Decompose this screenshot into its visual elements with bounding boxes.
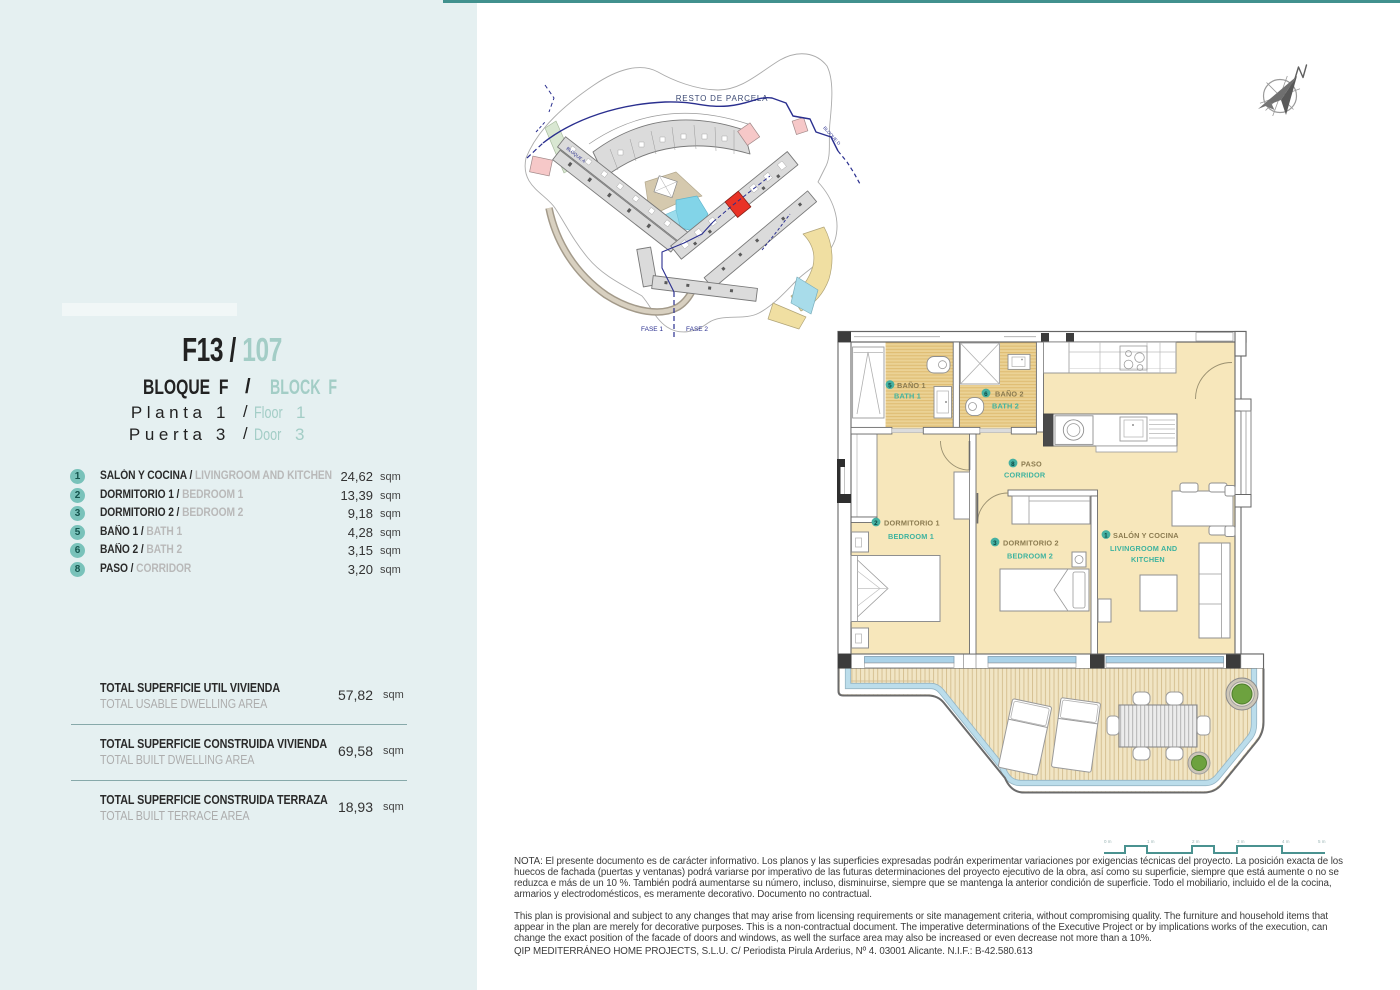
svg-text:BAÑO 2: BAÑO 2 [995, 390, 1024, 399]
svg-text:LIVINGROOM AND: LIVINGROOM AND [1110, 544, 1177, 553]
svg-text:DORMITORIO 1: DORMITORIO 1 [884, 519, 940, 528]
svg-text:2: 2 [874, 520, 878, 527]
svg-text:CORRIDOR: CORRIDOR [1004, 471, 1046, 480]
svg-text:1: 1 [1104, 533, 1108, 540]
svg-text:8: 8 [1011, 461, 1015, 468]
svg-text:4 m: 4 m [1282, 839, 1290, 844]
svg-text:BEDROOM 1: BEDROOM 1 [888, 532, 934, 541]
svg-text:BATH 1: BATH 1 [894, 392, 921, 401]
svg-text:PASO: PASO [1021, 460, 1042, 469]
svg-text:1 m: 1 m [1147, 839, 1155, 844]
svg-text:3 m: 3 m [1237, 839, 1245, 844]
svg-text:BATH 2: BATH 2 [992, 402, 1019, 411]
svg-text:2 m: 2 m [1192, 839, 1200, 844]
svg-text:6: 6 [984, 391, 988, 398]
svg-text:FASE 1: FASE 1 [641, 326, 663, 333]
svg-text:5 m: 5 m [1318, 839, 1326, 844]
svg-text:BEDROOM 2: BEDROOM 2 [1007, 552, 1053, 561]
svg-text:0 m: 0 m [1104, 839, 1112, 844]
svg-text:FASE 2: FASE 2 [686, 326, 708, 333]
svg-text:RESTO DE PARCELA: RESTO DE PARCELA [676, 94, 769, 103]
svg-text:5: 5 [888, 383, 892, 390]
svg-text:BAÑO 1: BAÑO 1 [897, 381, 926, 390]
svg-text:DORMITORIO 2: DORMITORIO 2 [1003, 539, 1059, 548]
svg-text:3: 3 [993, 540, 997, 547]
svg-text:KITCHEN: KITCHEN [1131, 555, 1165, 564]
svg-text:SALÓN Y COCINA: SALÓN Y COCINA [1113, 531, 1179, 540]
